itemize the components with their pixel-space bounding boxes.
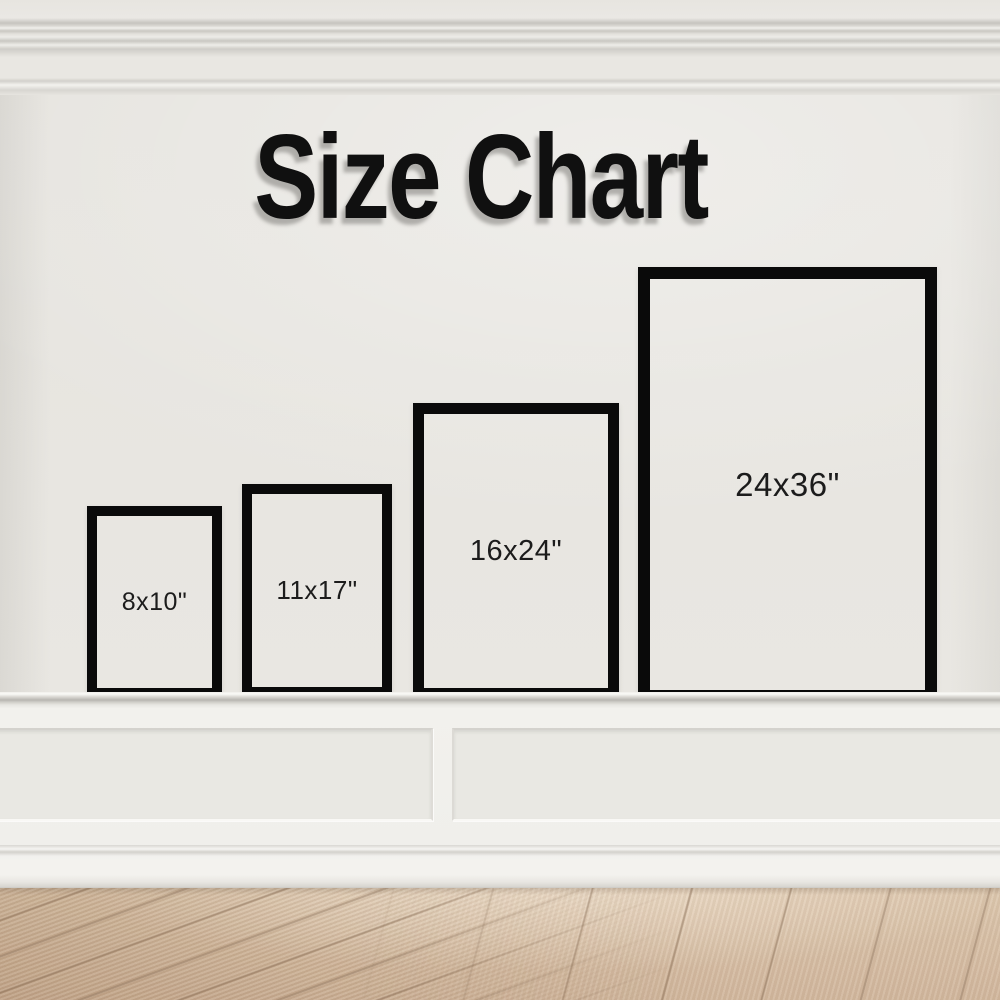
baseboard-molding	[0, 845, 1000, 888]
frame-size-label: 11x17"	[276, 575, 357, 606]
wainscoting	[0, 708, 1000, 845]
frame-11x17: 11x17"	[242, 484, 392, 697]
page-title: Size Chart	[81, 117, 881, 237]
chair-rail-molding	[0, 692, 1000, 708]
frame-size-label: 24x36"	[735, 466, 840, 504]
frame-size-label: 16x24"	[470, 535, 562, 568]
size-chart-scene: Size Chart 8x10" 11x17" 16x24" 24x36"	[0, 0, 1000, 1000]
crown-molding	[0, 0, 1000, 95]
frame-size-label: 8x10"	[122, 588, 188, 617]
wainscot-panel-right	[452, 728, 1000, 821]
frame-24x36: 24x36"	[638, 267, 937, 702]
wood-floor	[0, 888, 1000, 1000]
frame-16x24: 16x24"	[413, 403, 619, 699]
frame-8x10: 8x10"	[87, 506, 222, 698]
wainscot-panel-left	[0, 728, 433, 821]
floor-planks-right	[0, 888, 1000, 1000]
